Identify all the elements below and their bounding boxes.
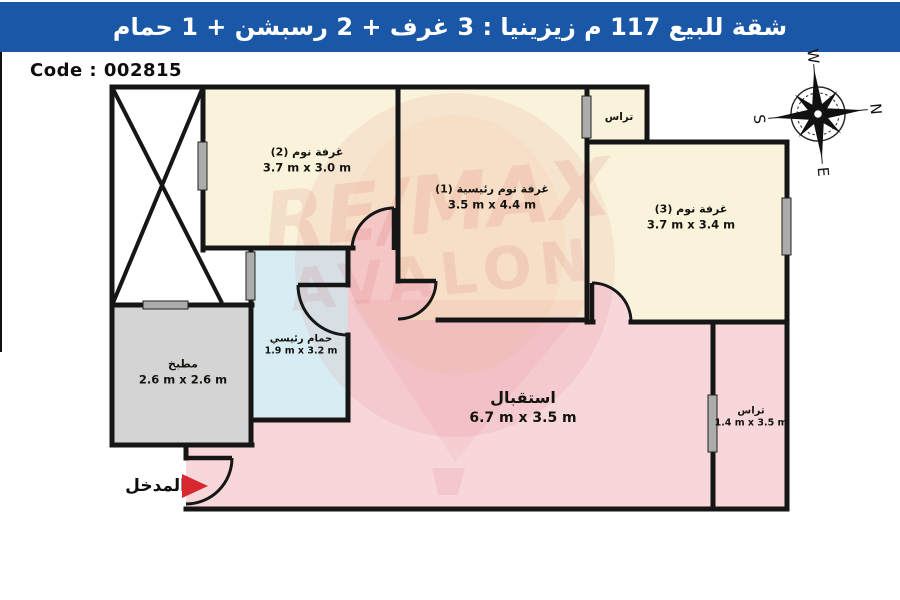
- room-label-terrace-right: تراس 1.4 m x 3.5 m: [715, 406, 788, 429]
- bedroom-3-window: [782, 198, 791, 255]
- bedroom-3-name: غرفة نوم (3): [647, 203, 735, 216]
- bedroom-3-dims: 3.7 m x 3.4 m: [647, 218, 735, 232]
- compass-w-label: W: [803, 48, 822, 65]
- entrance-label: المدخل: [125, 476, 186, 496]
- room-label-terrace-top: تراس: [605, 111, 634, 123]
- kitchen-dims: 2.6 m x 2.6 m: [139, 373, 227, 387]
- compass-n-label: N: [866, 103, 885, 116]
- terrace-right-dims: 1.4 m x 3.5 m: [715, 418, 788, 429]
- master-bedroom-name: غرفة نوم رئيسية (1): [435, 183, 549, 196]
- bedroom-2-window: [198, 142, 207, 190]
- compass-e-label: E: [814, 166, 833, 177]
- room-label-reception: استقبال 6.7 m x 3.5 m: [469, 388, 576, 426]
- terrace-top-window: [582, 96, 591, 138]
- bathroom-name: حمام رئيسي: [265, 334, 338, 345]
- entrance-arrow-icon: [182, 474, 208, 498]
- compass-s-label: S: [750, 114, 769, 125]
- reception-name: استقبال: [469, 388, 576, 407]
- terrace-right-name: تراس: [715, 406, 788, 417]
- bedroom-2-dims: 3.7 m x 3.0 m: [263, 161, 351, 175]
- room-label-bedroom-2: غرفة نوم (2) 3.7 m x 3.0 m: [263, 146, 351, 175]
- room-label-bedroom-3: غرفة نوم (3) 3.7 m x 3.4 m: [647, 203, 735, 232]
- reception-area-left: [251, 420, 348, 445]
- floorplan-page: شقة للبيع 117 م زيزينيا : 3 غرف + 2 رسبش…: [0, 0, 900, 600]
- room-label-bathroom: حمام رئيسي 1.9 m x 3.2 m: [265, 334, 338, 357]
- floorplan-drawing: RE/MAX AVALON: [0, 0, 900, 600]
- room-label-kitchen: مطبخ 2.6 m x 2.6 m: [139, 358, 227, 387]
- bathroom-dims: 1.9 m x 3.2 m: [265, 346, 338, 357]
- entrance-marker: المدخل: [96, 472, 208, 500]
- room-label-master-bedroom: غرفة نوم رئيسية (1) 3.5 m x 4.4 m: [435, 183, 549, 212]
- bedroom-2-name: غرفة نوم (2): [263, 146, 351, 159]
- terrace-top-name: تراس: [605, 111, 634, 123]
- kitchen-name: مطبخ: [139, 358, 227, 371]
- kitchen-window: [143, 301, 188, 309]
- reception-dims: 6.7 m x 3.5 m: [469, 410, 576, 426]
- bathroom-window: [246, 252, 255, 300]
- master-bedroom-dims: 3.5 m x 4.4 m: [435, 198, 549, 212]
